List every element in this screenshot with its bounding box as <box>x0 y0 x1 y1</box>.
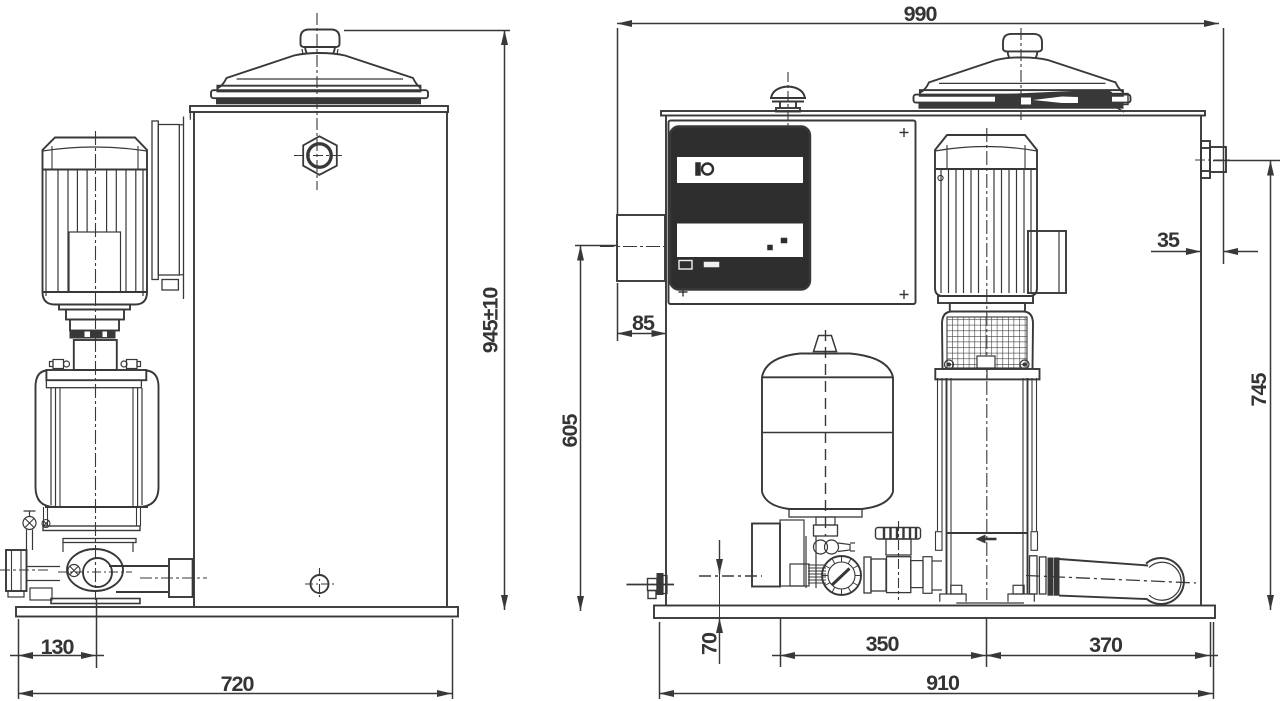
svg-text:130: 130 <box>41 635 75 659</box>
svg-text:745: 745 <box>1247 373 1271 407</box>
svg-text:370: 370 <box>1089 633 1123 657</box>
svg-text:605: 605 <box>558 414 582 448</box>
svg-text:350: 350 <box>866 632 900 656</box>
svg-text:990: 990 <box>904 2 938 26</box>
svg-text:720: 720 <box>221 672 255 696</box>
svg-text:945±10: 945±10 <box>479 287 503 354</box>
svg-text:70: 70 <box>698 632 722 655</box>
svg-text:910: 910 <box>926 671 960 695</box>
svg-text:85: 85 <box>632 311 655 335</box>
svg-text:35: 35 <box>1157 228 1180 252</box>
